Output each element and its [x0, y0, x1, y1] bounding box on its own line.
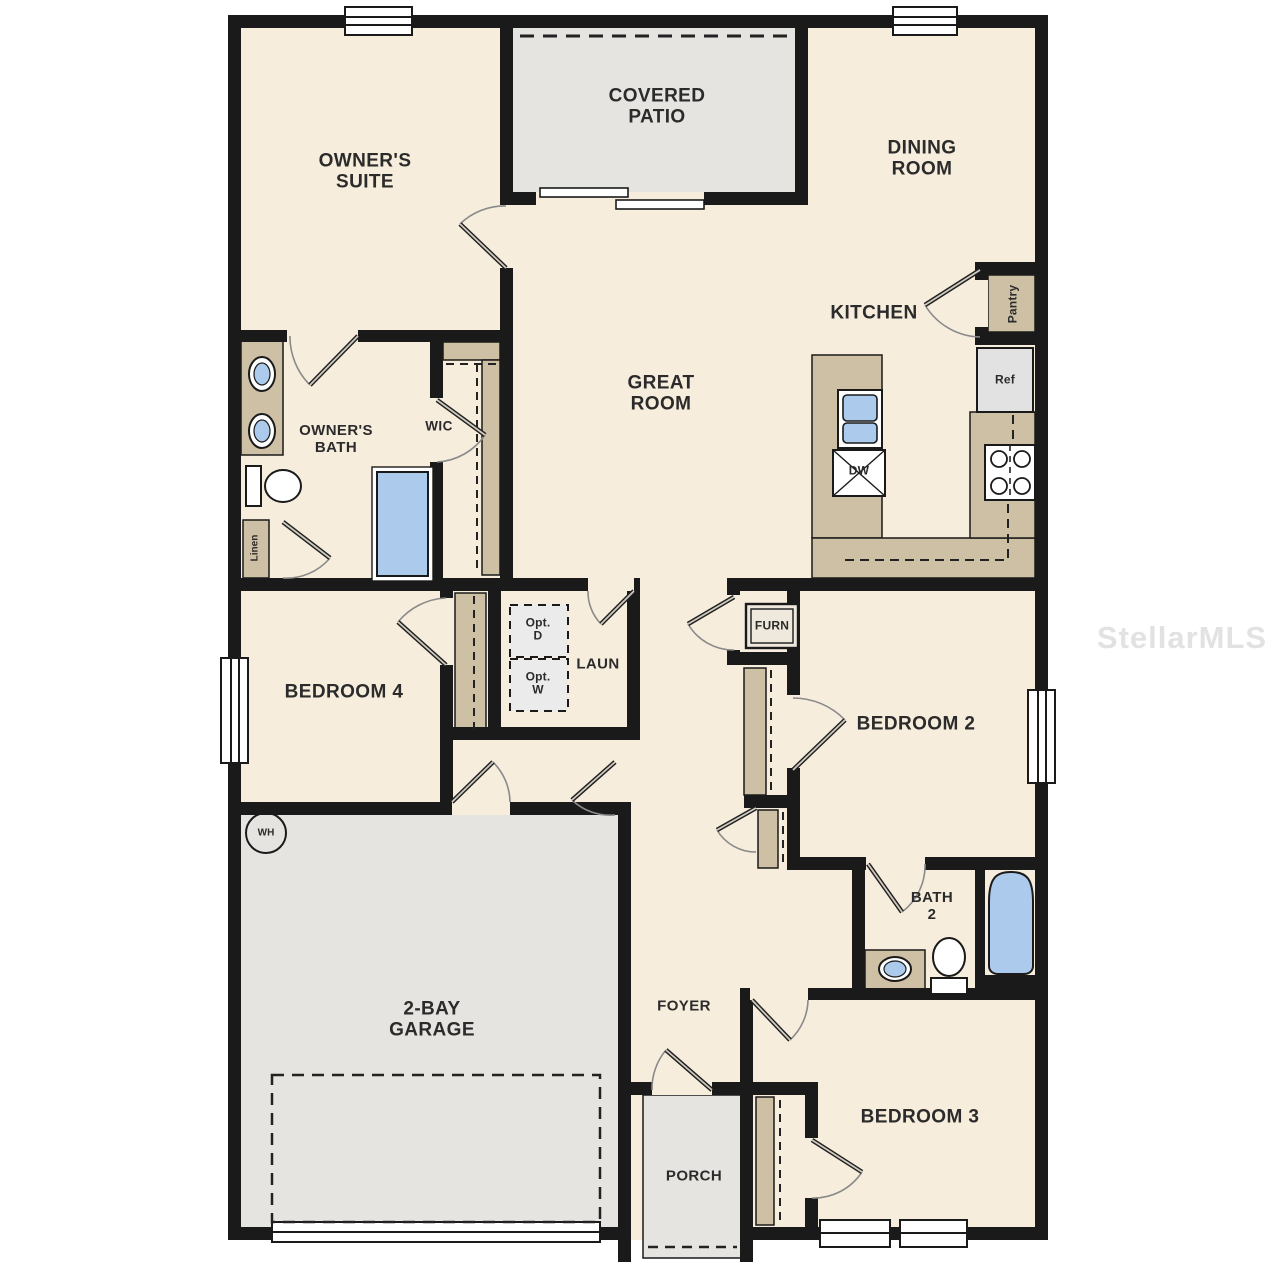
bathtub — [989, 872, 1033, 974]
window-bedroom4 — [221, 658, 248, 763]
bedroom3-closet-shelf — [756, 1097, 774, 1225]
room-label-foyer: FOYER — [657, 999, 711, 1016]
hall-closet-shelf — [744, 668, 766, 795]
kitchen-sink — [838, 390, 882, 448]
room-label-wic: WIC — [425, 418, 452, 433]
room-label-covered-patio: COVERED PATIO — [609, 86, 706, 129]
fixture-label-dishwasher: DW — [849, 464, 869, 477]
owners-toilet — [246, 466, 301, 506]
window-owners-suite — [345, 7, 412, 35]
bath2-sink — [879, 957, 911, 981]
room-label-owners-bath: OWNER'S BATH — [299, 423, 373, 457]
room-label-owners-suite: OWNER'S SUITE — [319, 151, 412, 194]
fixture-label-refrigerator: Ref — [995, 373, 1015, 386]
bedroom4-closet-shelf — [455, 593, 486, 736]
fixture-label-pantry: Pantry — [1006, 285, 1019, 324]
vanity-sink-1 — [249, 357, 275, 391]
room-label-bedroom-3: BEDROOM 3 — [861, 1106, 980, 1127]
room-label-bedroom-4: BEDROOM 4 — [285, 681, 404, 702]
range-stove — [985, 445, 1035, 500]
floor-plan-page: COVERED PATIO OWNER'S SUITE DINING ROOM … — [0, 0, 1280, 1280]
room-label-bedroom-2: BEDROOM 2 — [857, 713, 976, 734]
hall-closet2-shelf — [758, 810, 778, 868]
garage-door — [272, 1222, 600, 1242]
stellar-mls-watermark: StellarMLS — [1097, 620, 1267, 656]
window-bedroom3-left — [820, 1220, 890, 1247]
room-label-kitchen: KITCHEN — [830, 302, 917, 323]
floor-plan-drawing — [0, 0, 1280, 1280]
bath2-toilet — [931, 938, 967, 994]
room-label-garage: 2-BAY GARAGE — [389, 999, 475, 1042]
fixture-label-water-heater: WH — [258, 827, 275, 838]
room-label-great-room: GREAT ROOM — [627, 373, 694, 416]
kitchen-bottom-counter — [812, 538, 1035, 578]
fixture-label-linen: Linen — [249, 535, 260, 562]
wic-shelf-top — [443, 342, 500, 360]
window-dining — [893, 7, 957, 35]
fixture-label-opt-washer: Opt. W — [526, 671, 551, 698]
wic-shelf-side — [482, 360, 500, 575]
room-label-bath-2: BATH 2 — [911, 890, 953, 924]
room-label-porch: PORCH — [666, 1169, 722, 1186]
vanity-sink-2 — [249, 414, 275, 448]
window-bedroom2 — [1028, 690, 1055, 783]
fixture-label-opt-dryer: Opt. D — [526, 617, 551, 644]
fixture-label-furnace: FURN — [755, 619, 789, 632]
window-bedroom3-right — [900, 1220, 967, 1247]
shower — [372, 467, 433, 581]
room-label-laundry: LAUN — [576, 657, 619, 674]
room-label-dining-room: DINING ROOM — [888, 138, 957, 181]
